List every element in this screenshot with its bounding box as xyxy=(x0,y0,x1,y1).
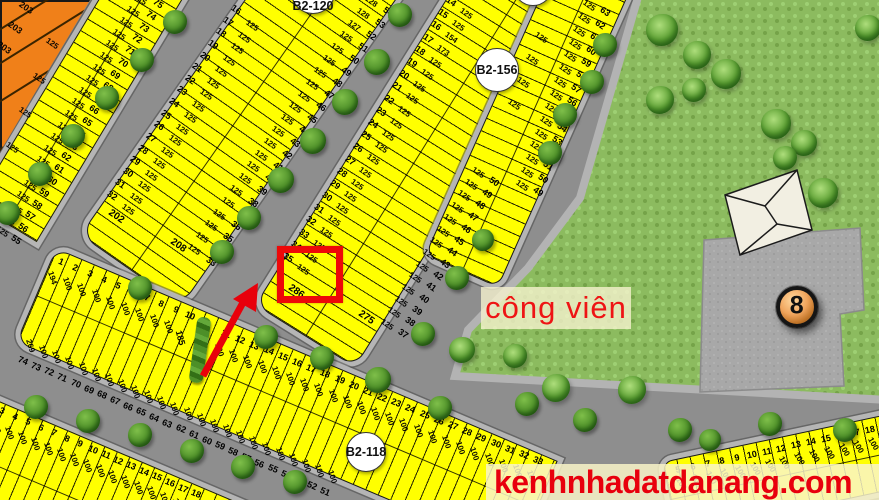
block-badge-b2-120: B2-120 xyxy=(291,0,335,14)
plot-area-value: 100 xyxy=(287,452,299,467)
plot-area-value: 125 xyxy=(213,65,229,79)
plot-area-value: 185 xyxy=(174,330,187,347)
plot-area-value: 125 xyxy=(381,129,397,143)
plot-number: 28 xyxy=(461,426,474,438)
plot-area-value: 100 xyxy=(807,449,821,465)
street-tree-icon xyxy=(833,418,857,442)
plot-area-value: 194 xyxy=(46,270,58,285)
plot-number: 55 xyxy=(266,463,279,475)
plot-area-value: 125 xyxy=(167,134,183,148)
plot-number: 59 xyxy=(579,57,592,70)
plot-number: 40 xyxy=(263,172,276,185)
plot-area-value: 125 xyxy=(581,0,597,13)
plot-area-value: 125 xyxy=(338,30,354,44)
plot-number: 49 xyxy=(339,65,352,78)
plot-area-value: 125 xyxy=(190,99,206,113)
street-tree-icon xyxy=(300,128,326,154)
plot-area-value: 125 xyxy=(404,92,420,106)
plot-number: 22 xyxy=(376,391,389,403)
plot-area-value: 100 xyxy=(29,436,41,451)
plot-area-value: 125 xyxy=(456,189,472,203)
plot-area-value: 125 xyxy=(195,231,211,245)
plot-number: 11 xyxy=(99,449,111,461)
plot-number: 6 xyxy=(37,422,45,432)
plot-area-value: 125 xyxy=(91,62,107,76)
plot-number: 1 xyxy=(57,257,65,267)
plot-area-value: 125 xyxy=(514,179,530,193)
plot-area-value: 125 xyxy=(557,63,573,77)
plot-number: 14 xyxy=(444,0,457,9)
plot-number: 32 xyxy=(105,189,118,202)
plot-area-value: 125 xyxy=(304,78,320,92)
plot-area-value: 202 xyxy=(106,208,125,226)
plot-number: 74 xyxy=(144,9,157,22)
plot-number: 18 xyxy=(864,425,876,436)
plot-area-value: 208 xyxy=(168,237,187,255)
plot-number: 59 xyxy=(38,186,51,199)
plot-number: 66 xyxy=(122,400,135,412)
plot-area-value: 125 xyxy=(182,111,198,125)
plot-number: 12 xyxy=(112,455,125,467)
plot-number: 15 xyxy=(437,8,450,21)
plot-number: 17 xyxy=(177,482,190,494)
park-tree-icon xyxy=(682,78,706,102)
plot-area-value: 125 xyxy=(449,201,465,215)
street-tree-icon xyxy=(95,86,119,110)
plot-area-value: 125 xyxy=(77,86,93,100)
plot-number: 56 xyxy=(253,457,266,469)
plot-area-value: 125 xyxy=(43,144,59,158)
plot-area-value: 125 xyxy=(330,42,346,56)
plot-area-value: 125 xyxy=(212,207,228,221)
plot-number: 69 xyxy=(82,383,95,395)
plot-number: 5 xyxy=(24,417,32,427)
park-tree-icon xyxy=(791,130,817,156)
plot-area-value: 125 xyxy=(553,76,569,90)
plot-area-value: 125 xyxy=(1,213,17,227)
plot-number: 51 xyxy=(541,160,554,173)
plot-area-value: 125 xyxy=(524,153,540,167)
plot-area-value: 100 xyxy=(312,383,324,398)
plot-number: 17 xyxy=(305,362,318,374)
plot-area-value: 125 xyxy=(342,190,358,204)
plot-number: 62 xyxy=(174,423,187,435)
plot-area-value: 125 xyxy=(84,74,100,88)
street-tree-icon xyxy=(254,325,278,349)
plot-number: 64 xyxy=(73,127,86,140)
plot-area-value: 125 xyxy=(470,166,486,180)
street-tree-icon xyxy=(411,322,435,346)
plot-area-value: 100 xyxy=(119,301,131,316)
plot-area-value: 100 xyxy=(145,486,157,500)
plot-area-value: 125 xyxy=(125,4,141,18)
plot-area-value: 100 xyxy=(182,407,194,422)
plot-area-value: 100 xyxy=(104,295,116,310)
plot-area-value: 125 xyxy=(529,140,545,154)
plot-area-value: 100 xyxy=(0,419,2,434)
plot-area-value: 100 xyxy=(50,350,62,365)
plot-number: 65 xyxy=(80,115,93,128)
plot-area-value: 125 xyxy=(206,76,222,90)
plot-number: 60 xyxy=(200,435,213,447)
plot-area-value: 128 xyxy=(355,7,371,21)
plot-area-value: 125 xyxy=(506,98,522,112)
plot-area-value: 125 xyxy=(296,89,312,103)
park-label-text: công viên xyxy=(485,290,627,326)
plot-area-value: 100 xyxy=(155,395,167,410)
plot-area-value: 100 xyxy=(158,491,170,500)
plot-number: 30 xyxy=(121,166,134,179)
plot-area-value: 125 xyxy=(419,68,435,82)
watermark-band: kenhnhadatdanang.com xyxy=(486,464,879,500)
plot-area-value: 125 xyxy=(562,50,578,64)
street-tree-icon xyxy=(668,418,692,442)
block-badge-partial xyxy=(513,0,553,6)
street-tree-icon xyxy=(76,409,100,433)
plot-number: 52 xyxy=(306,480,319,492)
plot-area-value: 125 xyxy=(572,25,588,39)
plot-area-value: 100 xyxy=(208,418,220,433)
plot-number: 50 xyxy=(348,53,361,66)
plot-area-value: 100 xyxy=(61,277,73,292)
plot-number: 22 xyxy=(183,73,196,86)
plot-area-value: 125 xyxy=(112,28,128,42)
plot-number: 47 xyxy=(466,211,479,224)
plot-area-value: 100 xyxy=(284,371,296,386)
plot-number: 62 xyxy=(594,18,607,31)
plot-number: 10 xyxy=(86,444,99,456)
plot-area-value: 125 xyxy=(244,19,260,33)
block-badge-b2-156: B2-156 xyxy=(475,48,519,92)
plot-number: 41 xyxy=(272,160,285,173)
plot-area-value: 125 xyxy=(132,0,148,7)
plot-number: 52 xyxy=(364,29,377,42)
plot-area-value: 125 xyxy=(118,16,134,30)
park-tree-icon xyxy=(711,59,741,89)
street-tree-icon xyxy=(210,240,234,264)
plot-area-value: 125 xyxy=(533,127,549,141)
park-tree-icon xyxy=(761,109,791,139)
plot-area-value: 125 xyxy=(319,226,335,240)
plot-area-value: 100 xyxy=(107,469,119,484)
plot-number: 20 xyxy=(198,50,211,63)
plot-area-value: 125 xyxy=(136,180,152,194)
plot-area-value: 127 xyxy=(346,18,362,32)
plot-area-value: 125 xyxy=(128,191,144,205)
plot-number: 23 xyxy=(374,105,387,118)
plot-number: 41 xyxy=(424,281,437,294)
plot-area-value: 125 xyxy=(326,214,342,228)
plot-area-value: 100 xyxy=(851,439,865,455)
plot-area-value: 100 xyxy=(3,425,15,440)
plot-number: 72 xyxy=(43,366,56,378)
street-tree-icon xyxy=(231,455,255,479)
plot-number: 18 xyxy=(190,488,203,500)
plot-area-value: 125 xyxy=(237,172,253,186)
plot-number: 68 xyxy=(95,389,108,401)
plot-number: 24 xyxy=(167,96,180,109)
plot-number: 18 xyxy=(319,368,332,380)
plot-number: 20 xyxy=(398,69,411,82)
plot-number: 44 xyxy=(445,246,458,259)
plot-area-value: 125 xyxy=(321,54,337,68)
plot-area-value: 125 xyxy=(228,184,244,198)
watermark-text: kenhnhadatdanang.com xyxy=(494,464,852,500)
park-tree-icon xyxy=(683,41,711,69)
plot-number: 10 xyxy=(746,449,758,460)
plot-number: 42 xyxy=(280,148,293,161)
plot-area-value: 100 xyxy=(313,464,325,479)
plot-number: 57 xyxy=(240,452,253,464)
plot-number: 12 xyxy=(234,334,247,346)
plot-number: 29 xyxy=(475,432,488,444)
plot-area-value: 125 xyxy=(203,219,219,233)
street-tree-icon xyxy=(472,229,494,251)
plot-number: 37 xyxy=(396,327,409,340)
plot-number: 27 xyxy=(343,154,356,167)
plot-area-value: 100 xyxy=(274,447,286,462)
plot-number: 13 xyxy=(790,440,802,451)
plot-area-value: 100 xyxy=(81,458,93,473)
plot-number: 70 xyxy=(69,378,82,390)
plot-area-value: 125 xyxy=(388,117,404,131)
plot-number: 18 xyxy=(214,27,227,40)
plot-area-value: 125 xyxy=(386,306,402,320)
plot-area-value: 100 xyxy=(454,441,466,456)
street-tree-icon xyxy=(128,276,152,300)
plot-area-value: 100 xyxy=(119,475,131,490)
plot-number: 61 xyxy=(187,429,200,441)
plot-area-value: 125 xyxy=(379,318,395,332)
park-tree-icon xyxy=(646,14,678,46)
street-tree-icon xyxy=(553,103,577,127)
plot-number: 11 xyxy=(761,446,772,457)
strip-b2-120 xyxy=(80,0,428,306)
plot-number: 55 xyxy=(560,108,573,121)
plot-area-value: 125 xyxy=(15,190,31,204)
plot-number: 38 xyxy=(246,196,259,209)
plot-area-value: 100 xyxy=(341,394,353,409)
plot-number: 40 xyxy=(417,292,430,305)
street-tree-icon xyxy=(332,89,358,115)
street-tree-icon xyxy=(24,395,48,419)
plot-area-value: 100 xyxy=(94,464,106,479)
plot-number: 26 xyxy=(152,120,165,133)
plot-number: 75 xyxy=(151,0,164,11)
plot-number: 10 xyxy=(184,310,197,322)
plot-area-value: 100 xyxy=(90,289,102,304)
plot-number: 7 xyxy=(50,428,58,438)
street-tree-icon xyxy=(28,162,52,186)
park-label-band: công viên xyxy=(481,287,631,329)
plot-area-value: 125 xyxy=(538,115,554,129)
plot-number: 52 xyxy=(546,147,559,160)
plot-area-value: 125 xyxy=(175,122,191,136)
street-tree-icon xyxy=(758,412,782,436)
plot-area-value: 100 xyxy=(103,373,115,388)
plot-number: 26 xyxy=(351,142,364,155)
plot-number: 54 xyxy=(381,5,394,18)
plot-number: 16 xyxy=(164,477,177,489)
plot-area-value: 125 xyxy=(8,202,24,216)
plot-area-value: 125 xyxy=(515,76,531,90)
plot-area-value: 125 xyxy=(198,88,214,102)
plot-number: 60 xyxy=(584,44,597,57)
plot-area-value: 100 xyxy=(327,389,339,404)
plot-number: 66 xyxy=(87,104,100,117)
plot-area-value: 100 xyxy=(242,354,254,369)
street-tree-icon xyxy=(237,206,261,230)
plot-area-value: 125 xyxy=(373,141,389,155)
plot-area-value: 100 xyxy=(866,436,879,452)
plot-number: 21 xyxy=(390,81,403,94)
plot-number: 22 xyxy=(382,93,395,106)
plot-area-value: 100 xyxy=(227,348,239,363)
plot-number: 56 xyxy=(16,222,29,235)
street-tree-icon xyxy=(428,396,452,420)
park-tree-icon xyxy=(618,376,646,404)
plot-number: 67 xyxy=(109,395,122,407)
plot-area-value: 125 xyxy=(428,236,444,250)
street-tree-icon xyxy=(593,33,617,57)
plot-area-value: 100 xyxy=(440,435,452,450)
plot-area-value: 125 xyxy=(414,259,430,273)
highlight-box xyxy=(277,246,343,303)
plot-number: 8 xyxy=(157,299,165,309)
plot-area-value: 125 xyxy=(421,248,437,262)
plot-area-value: 125 xyxy=(70,97,86,111)
plot-area-value: 100 xyxy=(412,423,424,438)
street-tree-icon xyxy=(699,429,721,451)
plot-area-value: 125 xyxy=(221,53,237,67)
street-tree-icon xyxy=(538,141,562,165)
plot-number: 16 xyxy=(835,431,847,442)
plot-area-value: 125 xyxy=(120,203,136,217)
plot-number: 71 xyxy=(56,372,69,384)
plot-area-value: 100 xyxy=(129,384,141,399)
plot-area-value: 100 xyxy=(169,401,181,416)
plot-number: 72 xyxy=(130,33,143,46)
plot-number: 9 xyxy=(76,439,84,449)
plot-area-value: 100 xyxy=(132,480,144,495)
building-roof xyxy=(725,170,812,255)
plot-area-value: 125 xyxy=(313,66,329,80)
plot-area-value: 100 xyxy=(37,344,49,359)
plot-area-value: 100 xyxy=(300,458,312,473)
plot-area-value: 100 xyxy=(77,361,89,376)
plot-area-value: 125 xyxy=(105,39,121,53)
plot-number: 45 xyxy=(305,113,318,126)
plot-area-value: 100 xyxy=(64,356,76,371)
plot-number: 30 xyxy=(489,438,502,450)
plot-area-value: 125 xyxy=(524,53,540,67)
plot-number: 35 xyxy=(221,232,234,245)
plot-number: 15 xyxy=(276,351,289,363)
plot-number: 24 xyxy=(367,117,380,130)
plot-area-value: 125 xyxy=(237,30,253,44)
plot-number: 46 xyxy=(314,101,327,114)
plot-area-value: 100 xyxy=(247,435,259,450)
plot-number: 43 xyxy=(289,136,302,149)
plot-area-value: 100 xyxy=(148,313,160,328)
plot-area-value: 125 xyxy=(543,102,559,116)
plot-area-value: 100 xyxy=(221,424,233,439)
street-tree-icon xyxy=(180,439,204,463)
block-badge-b2-118: B2-118 xyxy=(346,432,386,472)
street-tree-icon xyxy=(128,423,152,447)
plot-number: 46 xyxy=(459,222,472,235)
street-tree-icon xyxy=(580,70,604,94)
strip-east-park xyxy=(425,0,628,288)
plot-number: 34 xyxy=(213,244,226,257)
plot-area-value: 125 xyxy=(576,12,592,26)
plot-number: 17 xyxy=(222,15,235,28)
plot-number: 68 xyxy=(102,80,115,93)
plot-number: 18 xyxy=(413,44,426,57)
pointer-arrow xyxy=(0,0,879,500)
plot-number: 44 xyxy=(297,124,310,137)
plot-area-value: 275 xyxy=(356,309,375,327)
plot-area-value: 100 xyxy=(142,390,154,405)
plot-number: 12 xyxy=(776,443,788,454)
trees-layer xyxy=(0,0,879,500)
plot-number: 57 xyxy=(24,210,37,223)
plot-number: 21 xyxy=(191,62,204,75)
plot-number: 25 xyxy=(359,130,372,143)
plot-area-value: 125 xyxy=(98,51,114,65)
plot-number: 6 xyxy=(129,287,137,297)
park-lawn xyxy=(455,0,879,400)
street-tree-icon xyxy=(0,201,20,225)
plot-number: 61 xyxy=(589,31,602,44)
building-marker: 8 xyxy=(776,286,818,328)
street-tree-icon xyxy=(515,392,539,416)
plot-number: 21 xyxy=(361,386,374,398)
plot-number: 31 xyxy=(113,178,126,191)
plot-area-value: 125 xyxy=(567,37,583,51)
street-tree-icon xyxy=(310,346,334,370)
plot-area-value: 125 xyxy=(220,196,236,210)
plot-number: 50 xyxy=(536,173,549,186)
plot-area-value: 154 xyxy=(443,31,459,45)
plot-area-value: 125 xyxy=(533,31,549,45)
plot-number: 32 xyxy=(517,449,530,461)
park-tree-icon xyxy=(773,146,797,170)
plot-area-value: 125 xyxy=(4,141,20,155)
plot-area-value: 100 xyxy=(90,367,102,382)
plot-area-value: 125 xyxy=(229,42,245,56)
plot-area-value: 125 xyxy=(271,125,287,139)
plot-area-value: 125 xyxy=(393,294,409,308)
plot-number: 48 xyxy=(331,77,344,90)
plot-area-value: 100 xyxy=(398,417,410,432)
plot-area-value: 100 xyxy=(355,400,367,415)
strips-layer xyxy=(0,0,879,500)
plot-number: 53 xyxy=(292,474,305,486)
plot-number: 30 xyxy=(320,190,333,203)
plot-number: 26 xyxy=(432,414,445,426)
plot-number: 3 xyxy=(0,406,6,416)
plot-area-value: 100 xyxy=(234,430,246,445)
plot-number: 14 xyxy=(805,437,817,448)
plot-area-value: 125 xyxy=(151,157,167,171)
plot-area-value: 125 xyxy=(279,113,295,127)
plot-number: 14 xyxy=(138,466,151,478)
plot-area-value: 125 xyxy=(287,101,303,115)
plot-area-value: 100 xyxy=(75,283,87,298)
plot-number: 49 xyxy=(480,187,493,200)
plot-number: 55 xyxy=(9,233,22,246)
